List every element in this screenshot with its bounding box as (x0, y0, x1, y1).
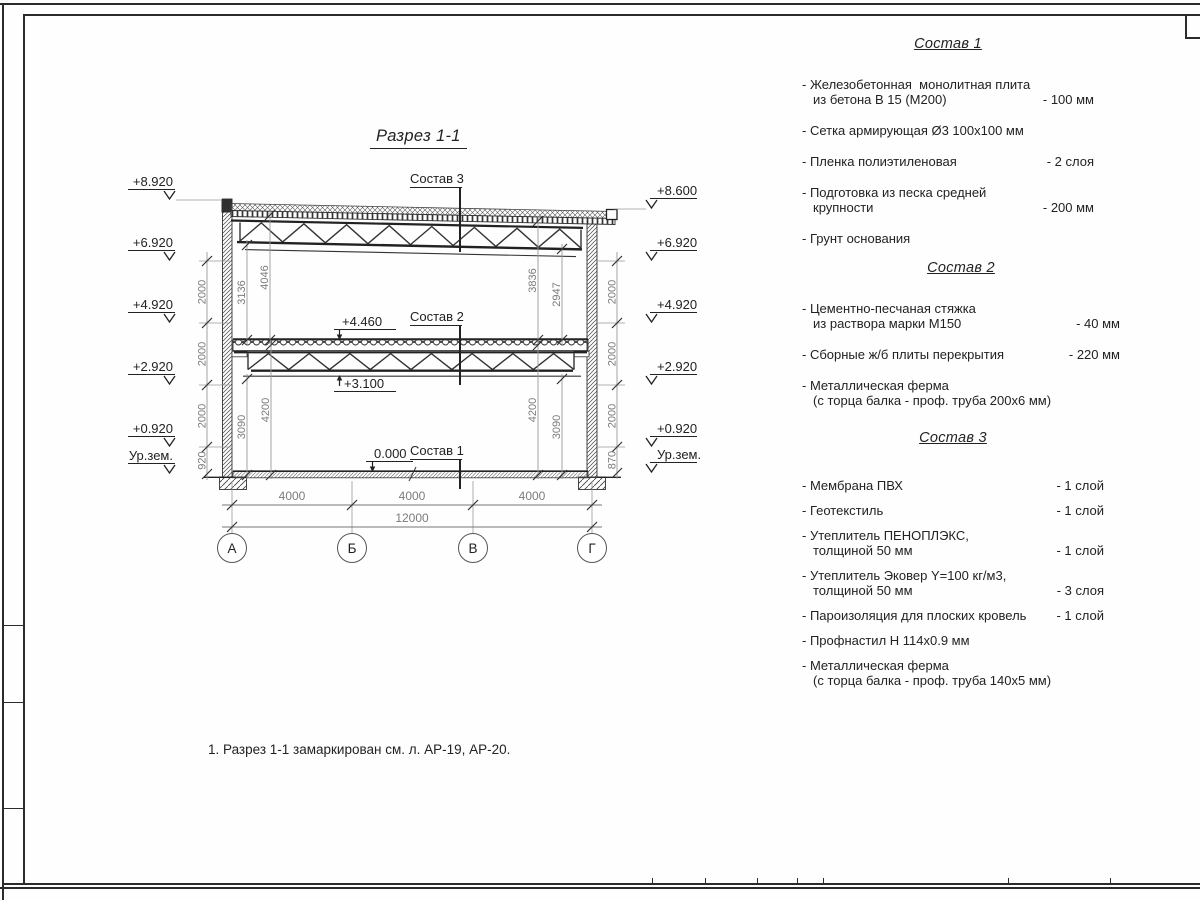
spec-item-text: - Металлическая ферма (с торца балка - п… (802, 378, 1051, 408)
title-block-divider (652, 878, 653, 883)
elevation-label: +2.920 (128, 359, 175, 375)
spec-item-value: - 220 мм (1061, 347, 1120, 362)
elevation-mark: +8.920 (128, 174, 175, 200)
dimension-labels: 3136404638362947309042004200309020002000… (197, 265, 619, 525)
spec-item-value: - 3 слоя (1049, 583, 1104, 598)
spec-item: - Пароизоляция для плоских кровель- 1 сл… (802, 608, 1104, 623)
dim-label: 2000 (197, 404, 209, 428)
elevation-label: Ур.зем. (650, 447, 697, 463)
title-block-divider (797, 878, 798, 883)
spec-item-value: - 1 слой (1048, 608, 1104, 623)
dim-label: 4200 (260, 398, 272, 422)
spec-item-value: - 40 мм (1068, 316, 1120, 331)
elevation-mark: +0.920 (128, 421, 175, 447)
axis-bubble: Б (338, 534, 367, 563)
dim-label: 3090 (236, 415, 248, 439)
elevation-arrow-icon (163, 464, 176, 474)
elevation-arrow-icon (163, 437, 176, 447)
dim-label: 2947 (551, 282, 563, 306)
spec-item-text: - Геотекстиль (802, 503, 886, 518)
dim-label: 2000 (607, 342, 619, 366)
spec-item-text: - Цементно-песчаная стяжка из раствора м… (802, 301, 976, 331)
spec-item-value: - 1 слой (1048, 503, 1104, 518)
spec-item-value: - 1 слой (1048, 543, 1104, 558)
spec-item-text: - Мембрана ПВХ (802, 478, 903, 493)
elevation-arrow-icon (163, 190, 176, 200)
level-mark-label: +4.460 (334, 314, 396, 330)
spec-item: - Цементно-песчаная стяжка из раствора м… (802, 301, 1120, 331)
spec-item: - Металлическая ферма (с торца балка - п… (802, 658, 1104, 688)
trusses (231, 221, 587, 377)
elevation-label: +4.920 (128, 297, 175, 313)
elevation-mark: +2.920 (650, 359, 697, 385)
spec-item: - Сетка армирующая Ø3 100х100 мм (802, 123, 1094, 138)
spec-item-text: - Подготовка из песка средней крупности (802, 185, 986, 215)
level-mark-4460: +4.460 (334, 314, 396, 330)
drawing-sheet: Разрез 1-1 (0, 0, 1200, 900)
dim-label: 3090 (551, 415, 563, 439)
spec-item-value: - 2 слоя (1039, 154, 1094, 169)
title-block-divider (705, 878, 706, 883)
spec-item: - Геотекстиль- 1 слой (802, 503, 1104, 518)
spec-item-text: - Пленка полиэтиленовая (802, 154, 957, 169)
axis-bubble: А (218, 534, 247, 563)
title-block-divider (1008, 878, 1009, 883)
elevation-mark: +0.920 (650, 421, 697, 447)
dim-label: 4000 (399, 489, 426, 503)
elevation-arrow-icon (163, 251, 176, 261)
spec-block-3: Состав 3 - Мембрана ПВХ- 1 слой- Геотекс… (802, 430, 1104, 698)
elevation-arrow-icon (645, 313, 658, 323)
dim-label: Б (348, 541, 357, 556)
dim-label: 3836 (527, 268, 539, 292)
spec-block-1: Состав 1 - Железобетонная монолитная пли… (802, 36, 1094, 262)
elevation-arrow-icon (645, 251, 658, 261)
spec-item: - Профнастил Н 114х0.9 мм (802, 633, 1104, 648)
spec-item-text: - Металлическая ферма (с торца балка - п… (802, 658, 1051, 688)
dim-label: 2000 (197, 342, 209, 366)
dim-label: 4000 (519, 489, 546, 503)
spec-item: - Металлическая ферма (с торца балка - п… (802, 378, 1120, 408)
dim-label: 2000 (607, 404, 619, 428)
down-arrow-icon (368, 462, 379, 472)
leader-composition-3 (459, 187, 461, 252)
elevation-label: +4.920 (650, 297, 697, 313)
sheet-note: 1. Разрез 1-1 замаркирован см. л. АР-19,… (208, 742, 510, 757)
elevation-label: +0.920 (650, 421, 697, 437)
elevation-mark: Ур.зем. (128, 448, 175, 474)
spec-item-text: - Утеплитель Эковер Y=100 кг/м3, толщино… (802, 568, 1006, 598)
level-mark-3100: +3.100 (334, 376, 396, 392)
leader-composition-2 (459, 325, 461, 385)
elevation-mark: Ур.зем. (650, 447, 697, 473)
elevation-label: Ур.зем. (128, 448, 175, 464)
spec-item-value: - 100 мм (1035, 92, 1094, 107)
roof-edge-cap (607, 210, 618, 220)
spec-item-text: - Грунт основания (802, 231, 910, 246)
dim-label: 4000 (279, 489, 306, 503)
dim-label: 2000 (607, 280, 619, 304)
spec-item: - Пленка полиэтиленовая- 2 слоя (802, 154, 1094, 169)
spec-item: - Грунт основания (802, 231, 1094, 246)
level-mark-0000: 0.000 (366, 446, 413, 462)
composition-label-1: Состав 1 (410, 443, 462, 460)
spec-item-value: - 200 мм (1035, 200, 1094, 215)
elevation-label: +8.600 (650, 183, 697, 199)
up-arrow-icon (335, 375, 346, 386)
dim-label: 12000 (395, 511, 429, 525)
spec-item: - Подготовка из песка средней крупности-… (802, 185, 1094, 215)
elevation-label: +6.920 (128, 235, 175, 251)
elevation-mark: +4.920 (650, 297, 697, 323)
down-arrow-icon (335, 330, 346, 340)
spec-item: - Железобетонная монолитная плита из бет… (802, 77, 1094, 107)
spec-item-text: - Утеплитель ПЕНОПЛЭКС, толщиной 50 мм (802, 528, 969, 558)
spec-item-text: - Сборные ж/б плиты перекрытия (802, 347, 1004, 362)
spec-item-text: - Профнастил Н 114х0.9 мм (802, 633, 970, 648)
dim-label: А (227, 541, 236, 556)
spec-title: Состав 2 (802, 260, 1120, 276)
elevation-label: +8.920 (128, 174, 175, 190)
level-mark-label: 0.000 (366, 446, 413, 462)
elevation-mark: +4.920 (128, 297, 175, 323)
spec-item: - Утеплитель ПЕНОПЛЭКС, толщиной 50 мм- … (802, 528, 1104, 558)
elevation-arrow-icon (645, 437, 658, 447)
elevation-arrow-icon (645, 199, 658, 209)
dim-label: 870 (607, 451, 619, 469)
dim-label: В (468, 541, 477, 556)
dim-label: 2000 (197, 280, 209, 304)
elevation-arrow-icon (163, 313, 176, 323)
dim-label: 4200 (527, 398, 539, 422)
elevation-mark: +8.600 (650, 183, 697, 209)
composition-label-3: Состав 3 (410, 171, 462, 188)
dim-label: 920 (197, 451, 209, 469)
elevation-arrow-icon (163, 375, 176, 385)
elevation-arrow-icon (645, 463, 658, 473)
spec-title: Состав 3 (802, 430, 1104, 446)
spec-item: - Утеплитель Эковер Y=100 кг/м3, толщино… (802, 568, 1104, 598)
dim-label: Г (588, 541, 596, 556)
title-block-divider (757, 878, 758, 883)
axis-bubble: Г (578, 534, 607, 563)
spec-item-value: - 1 слой (1048, 478, 1104, 493)
composition-label-2: Состав 2 (410, 309, 462, 326)
spec-item: - Мембрана ПВХ- 1 слой (802, 478, 1104, 493)
spec-item-text: - Сетка армирующая Ø3 100х100 мм (802, 123, 1024, 138)
spec-item-text: - Пароизоляция для плоских кровель (802, 608, 1026, 623)
elevation-mark: +6.920 (650, 235, 697, 261)
elevation-arrow-icon (645, 375, 658, 385)
elevation-label: +6.920 (650, 235, 697, 251)
spec-title: Состав 1 (802, 36, 1094, 52)
elevation-mark: +2.920 (128, 359, 175, 385)
leader-composition-1 (459, 459, 461, 489)
title-block-divider (1110, 878, 1111, 883)
axis-bubbles: АБВГ (218, 534, 607, 563)
spec-block-2: Состав 2 - Цементно-песчаная стяжка из р… (802, 260, 1120, 424)
spec-item-text: - Железобетонная монолитная плита из бет… (802, 77, 1030, 107)
dim-label: 4046 (259, 265, 271, 289)
title-block-divider (823, 878, 824, 883)
elevation-label: +2.920 (650, 359, 697, 375)
elevation-mark: +6.920 (128, 235, 175, 261)
dim-label: 3136 (236, 280, 248, 304)
axis-bubble: В (459, 534, 488, 563)
elevation-label: +0.920 (128, 421, 175, 437)
spec-item: - Сборные ж/б плиты перекрытия- 220 мм (802, 347, 1120, 362)
